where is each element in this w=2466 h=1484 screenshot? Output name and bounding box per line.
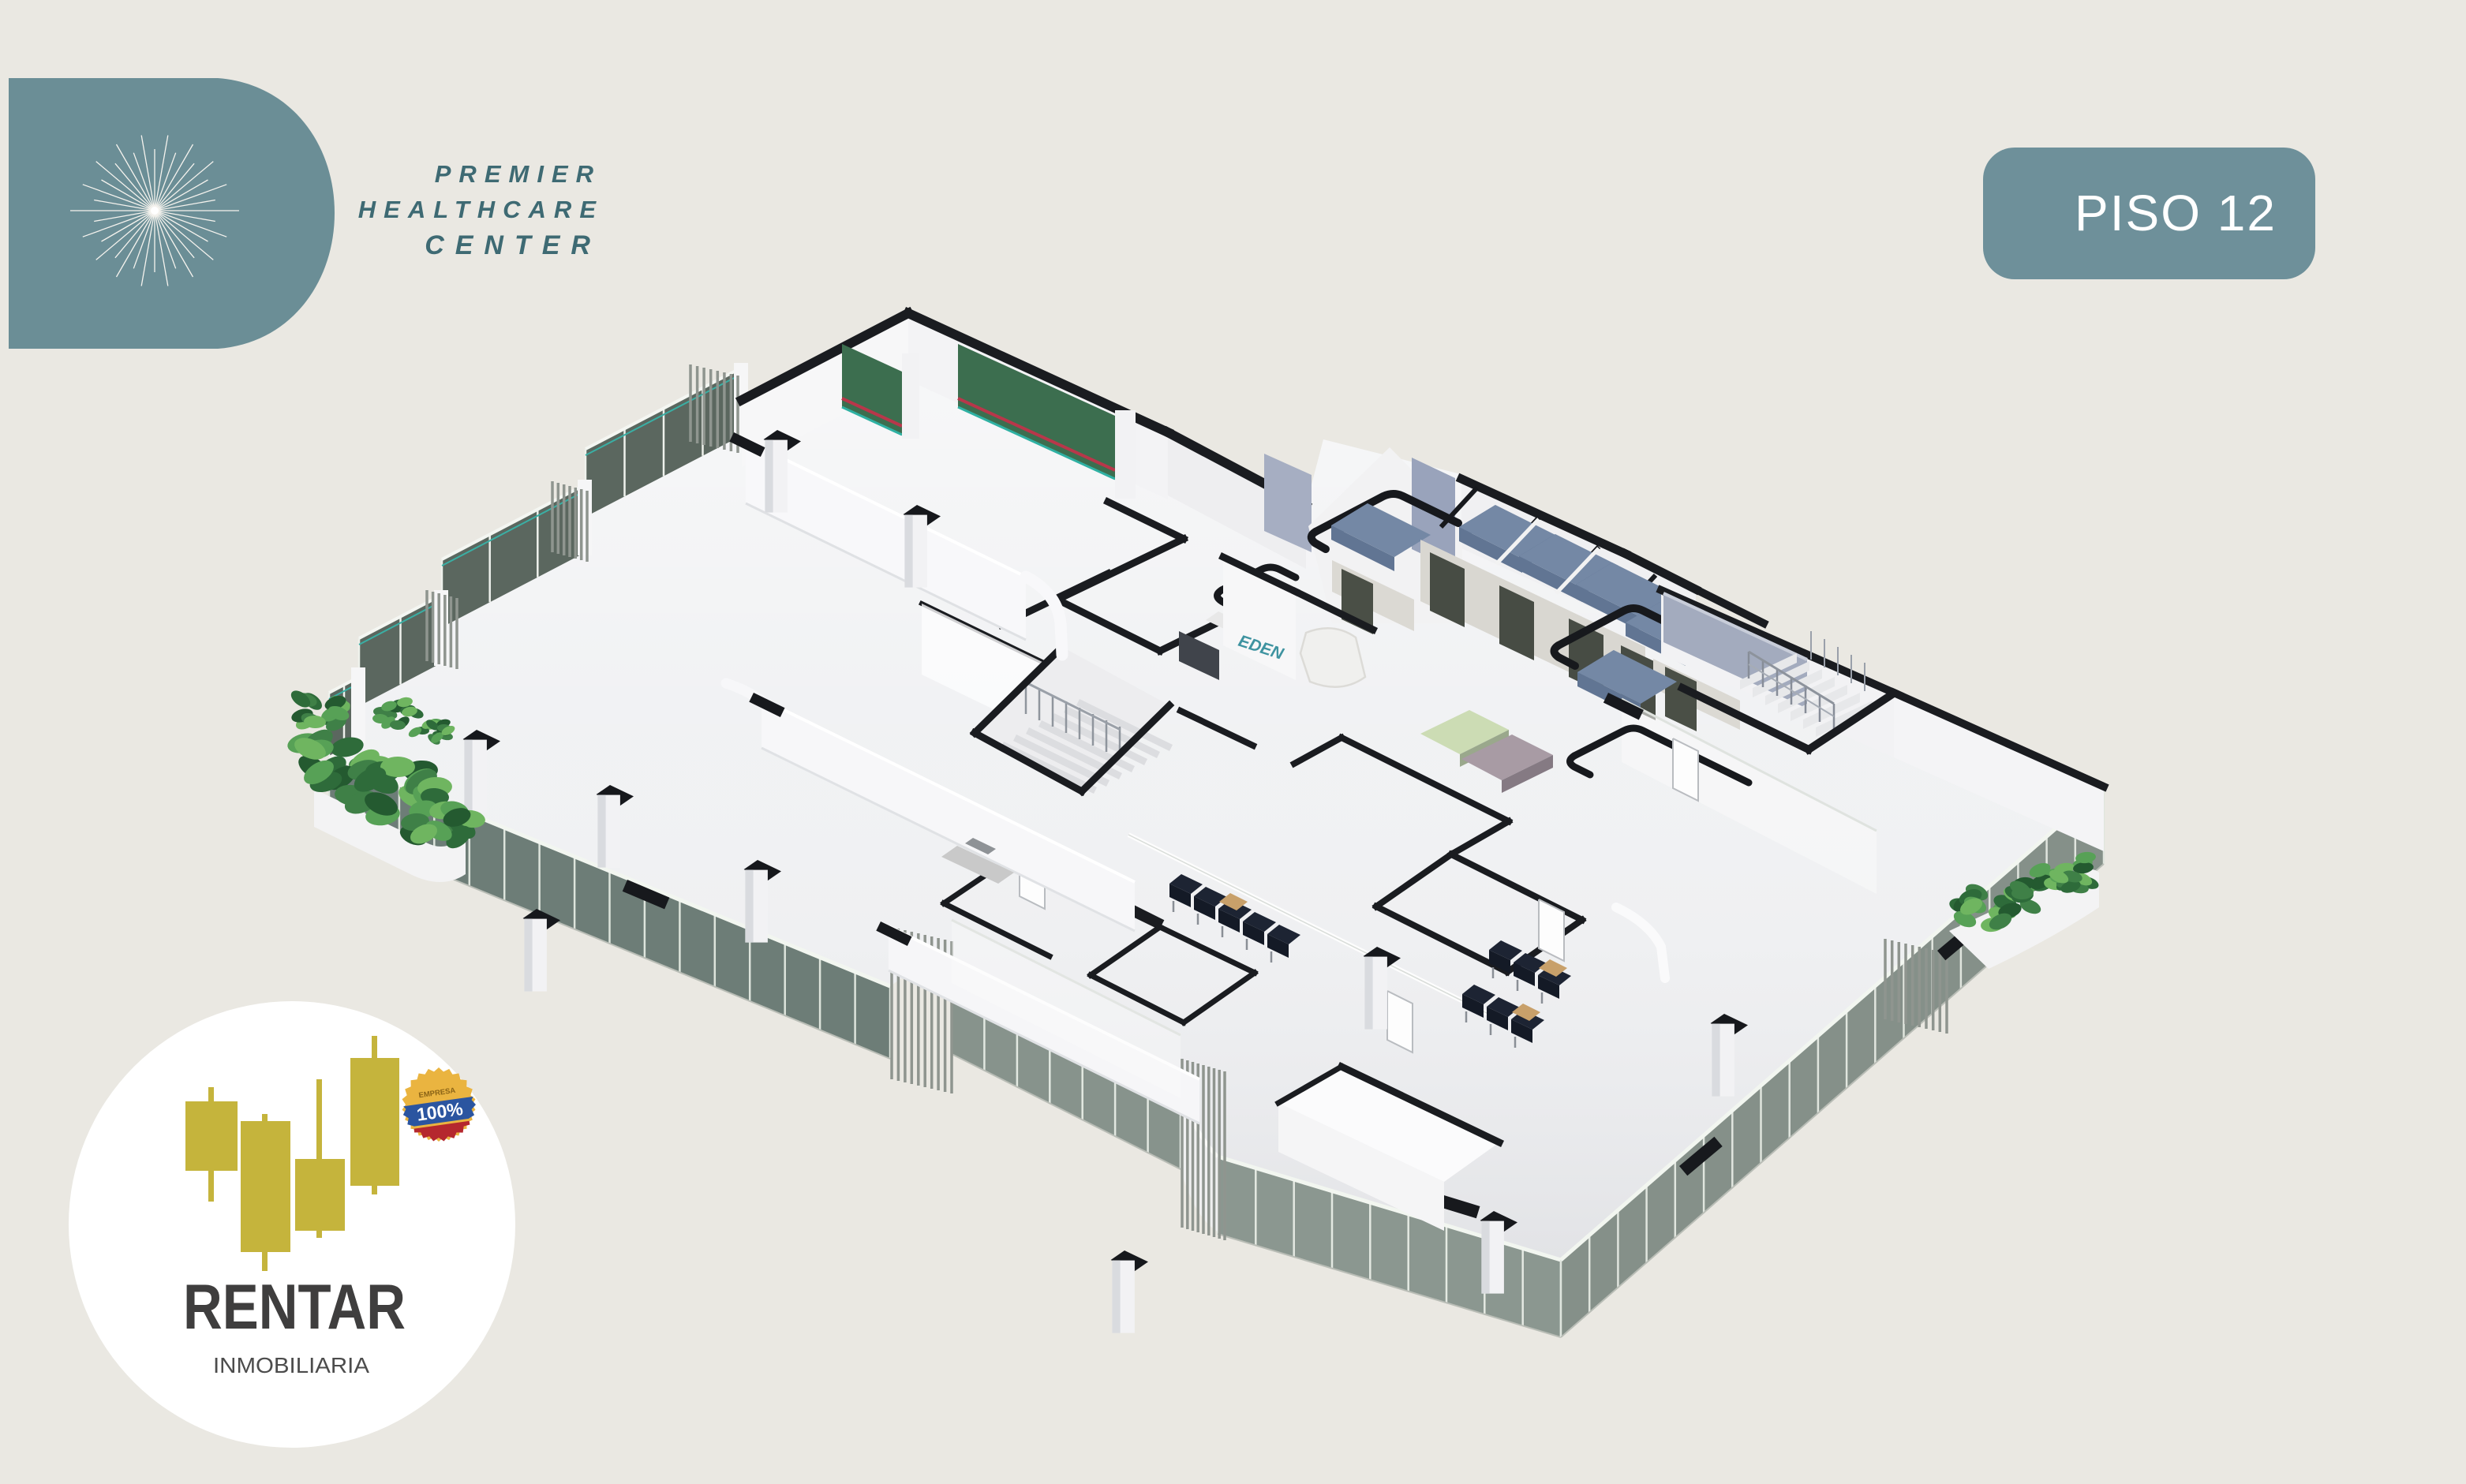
svg-text:CENTER: CENTER bbox=[425, 230, 601, 260]
svg-text:PISO 12: PISO 12 bbox=[2075, 185, 2277, 241]
svg-text:PREMIER: PREMIER bbox=[435, 160, 601, 188]
svg-text:RENTAR: RENTAR bbox=[183, 1272, 406, 1343]
svg-text:INMOBILIARIA: INMOBILIARIA bbox=[213, 1353, 369, 1377]
svg-text:HEALTHCARE: HEALTHCARE bbox=[358, 196, 604, 223]
